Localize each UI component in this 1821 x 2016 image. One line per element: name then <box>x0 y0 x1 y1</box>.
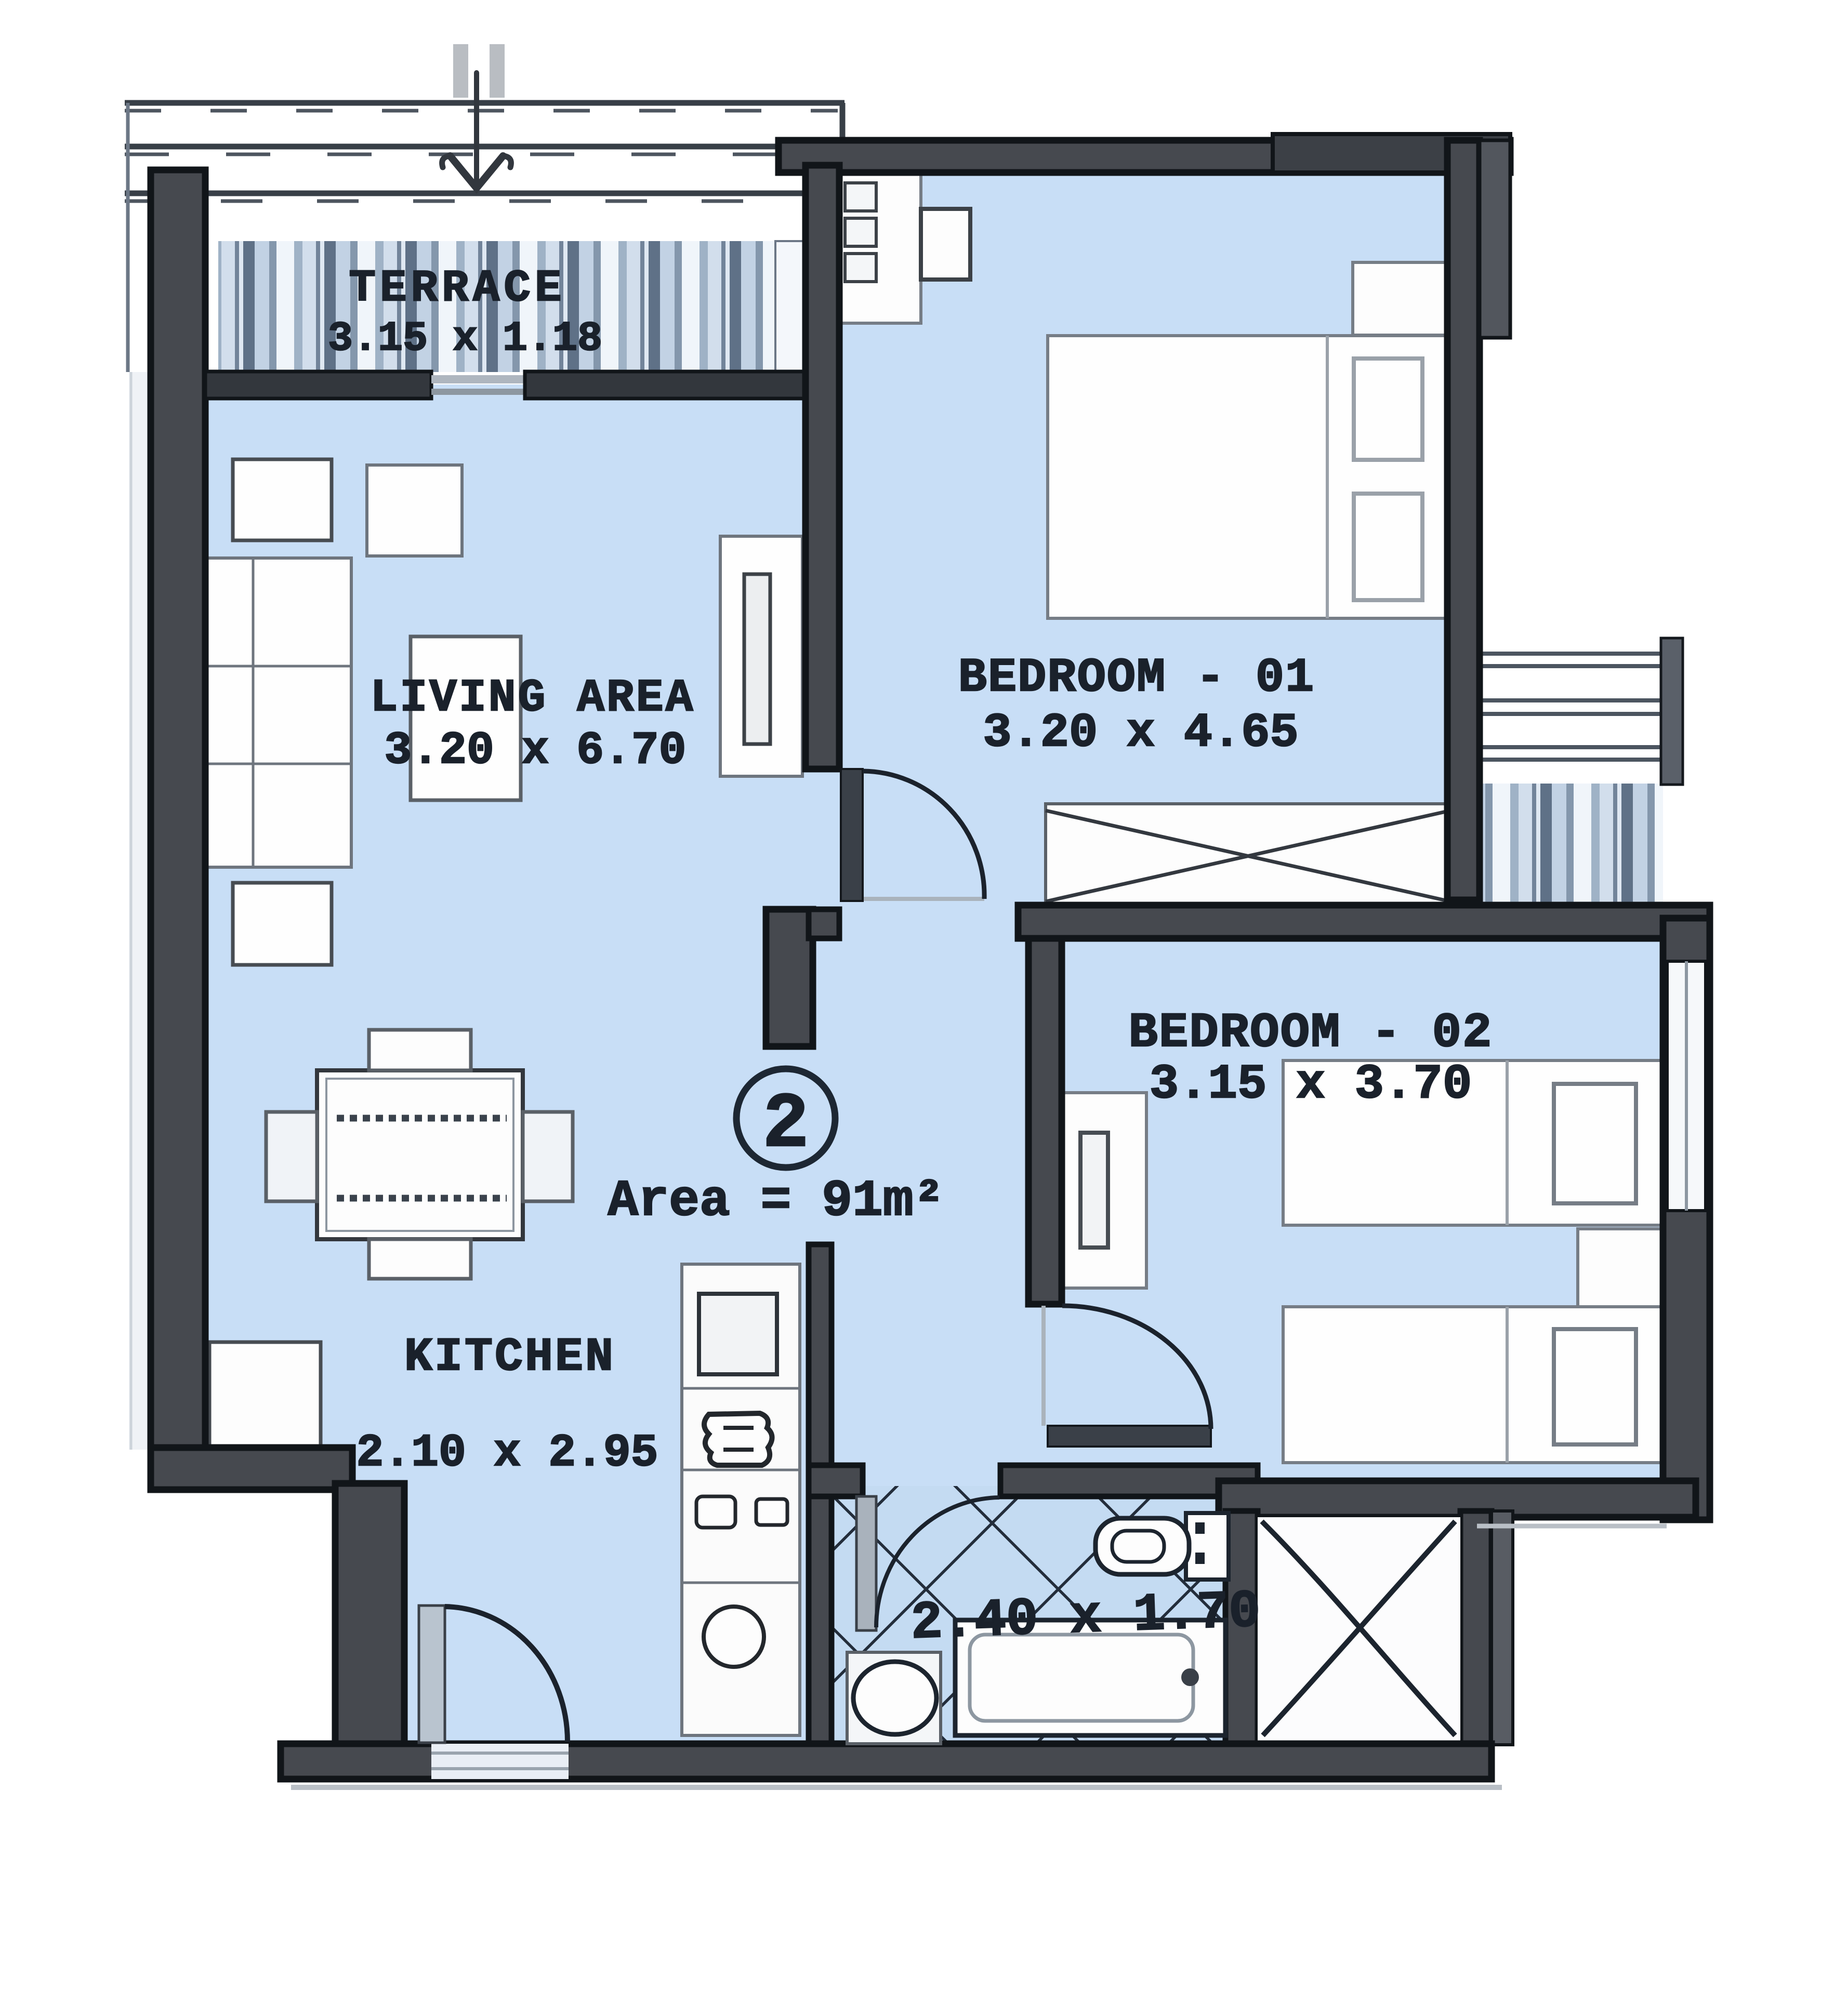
svg-text:LIVING AREA: LIVING AREA <box>371 673 695 724</box>
svg-text:3.15 x 1.18: 3.15 x 1.18 <box>328 315 602 363</box>
svg-text:2.40 x 1.70: 2.40 x 1.70 <box>910 1581 1262 1653</box>
svg-text:3.15 x 3.70: 3.15 x 3.70 <box>1150 1057 1472 1112</box>
svg-text:BEDROOM - 01: BEDROOM - 01 <box>958 651 1315 705</box>
svg-text:2.10 x 2.95: 2.10 x 2.95 <box>357 1428 658 1479</box>
svg-text:3.20 x 4.65: 3.20 x 4.65 <box>983 706 1298 760</box>
svg-text:BEDROOM - 02: BEDROOM - 02 <box>1129 1006 1493 1061</box>
svg-text:TERRACE: TERRACE <box>349 263 565 314</box>
svg-text:KITCHEN: KITCHEN <box>404 1331 615 1384</box>
svg-text:2: 2 <box>762 1081 809 1170</box>
svg-text:3.20 x 6.70: 3.20 x 6.70 <box>385 725 687 777</box>
svg-text:Area = 91m²: Area = 91m² <box>608 1173 944 1230</box>
